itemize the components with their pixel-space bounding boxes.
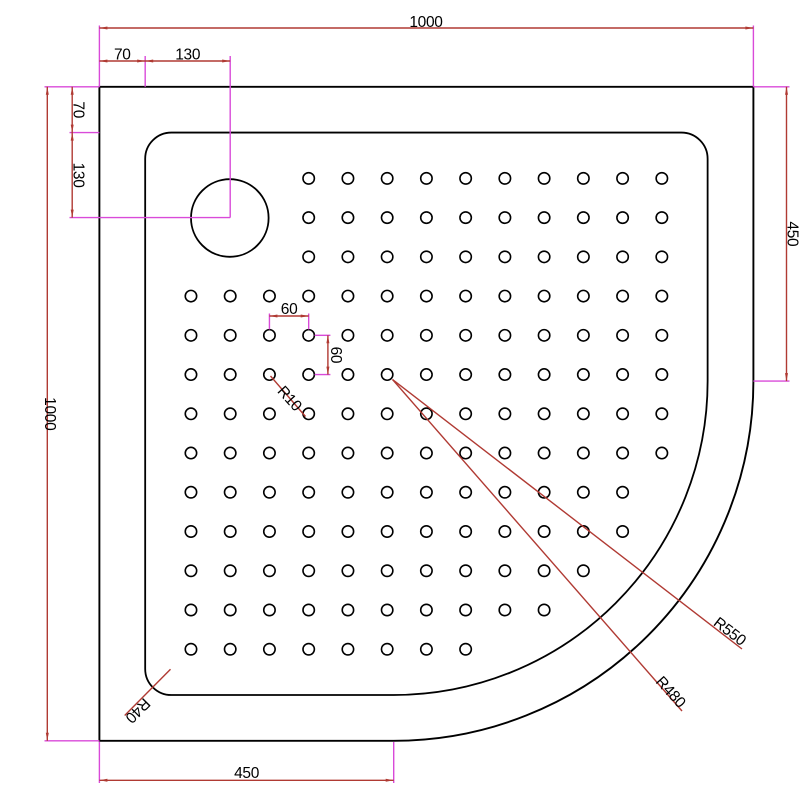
svg-text:60: 60 xyxy=(281,301,298,318)
svg-text:70: 70 xyxy=(70,101,87,118)
svg-text:1000: 1000 xyxy=(409,14,443,31)
svg-text:450: 450 xyxy=(234,765,260,782)
svg-text:450: 450 xyxy=(784,221,800,247)
svg-text:130: 130 xyxy=(70,163,87,189)
svg-text:60: 60 xyxy=(327,347,344,364)
svg-text:1000: 1000 xyxy=(41,397,58,431)
svg-text:130: 130 xyxy=(175,47,201,64)
svg-text:70: 70 xyxy=(114,47,131,64)
